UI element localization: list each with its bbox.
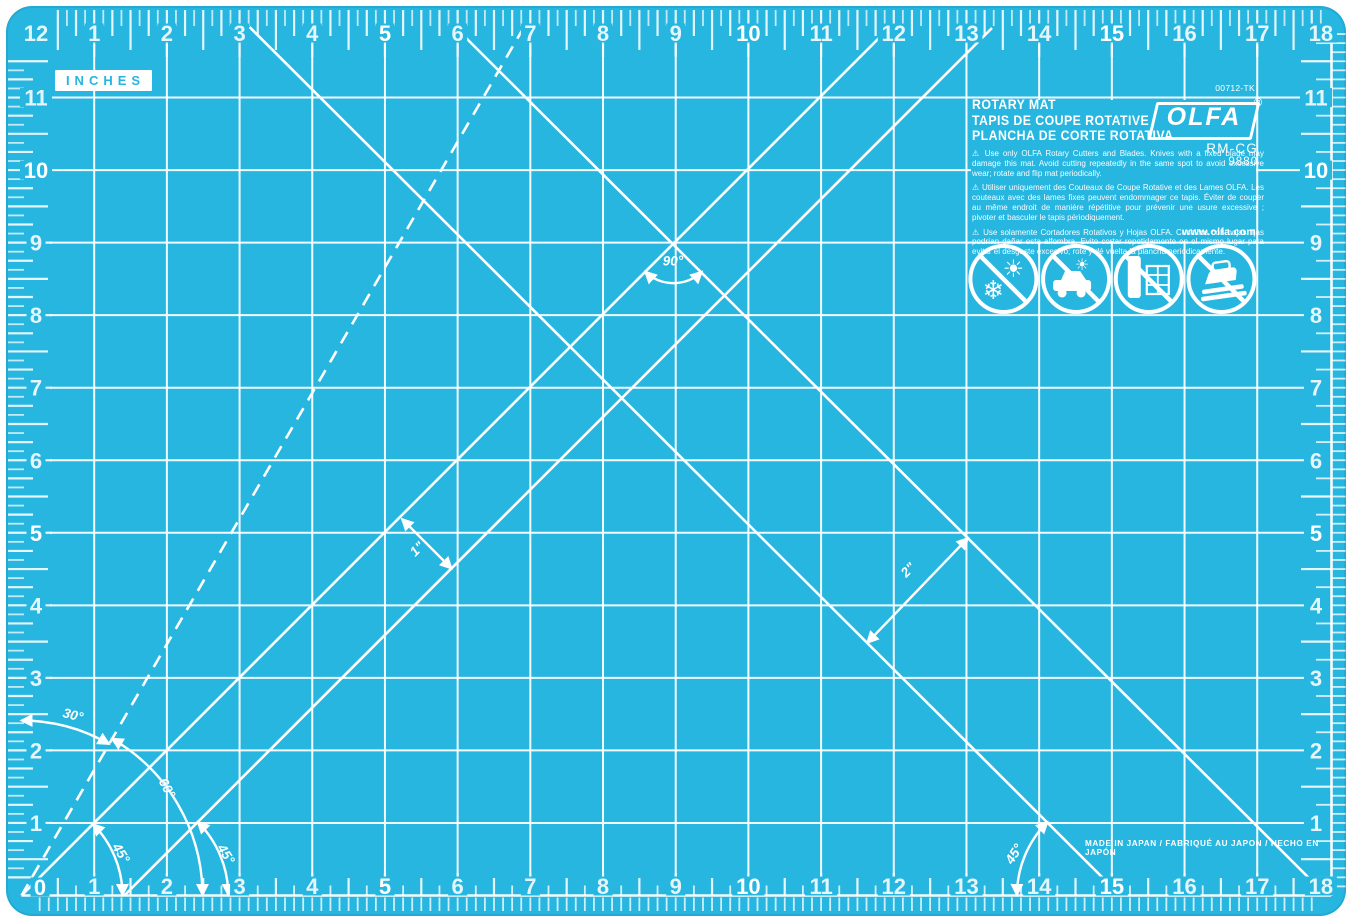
svg-text:1: 1 [1310,811,1322,836]
svg-text:2: 2 [1310,738,1322,763]
website-url: www.olfa.com [1182,226,1256,238]
made-in-label: MADE IN JAPAN / FABRIQUÉ AU JAPON / HECH… [1085,839,1352,857]
svg-text:15: 15 [1100,21,1124,46]
inches-label: INCHES [55,70,152,91]
svg-text:10: 10 [736,21,760,46]
svg-text:3: 3 [233,21,245,46]
svg-text:7: 7 [524,874,536,899]
svg-text:10: 10 [736,874,760,899]
svg-text:11: 11 [809,874,832,899]
svg-text:2: 2 [30,738,42,763]
model-code: RM-CG [1206,141,1258,156]
svg-text:6: 6 [1310,448,1322,473]
svg-text:8: 8 [597,21,609,46]
svg-text:7: 7 [1310,376,1322,401]
svg-text:9: 9 [30,231,42,256]
svg-text:6: 6 [30,448,42,473]
olfa-logo: OLFA [1155,102,1253,134]
svg-text:0: 0 [34,875,46,900]
registered-trademark-icon: ® [1254,97,1262,109]
title-es: PLANCHA DE CORTE ROTATIVA [972,128,1174,144]
svg-text:10: 10 [24,158,48,183]
svg-text:9: 9 [670,21,682,46]
warning-text-block: ⚠ Use only OLFA Rotary Cutters and Blade… [972,149,1264,257]
svg-text:17: 17 [1245,874,1269,899]
svg-text:3: 3 [1310,666,1322,691]
svg-text:17: 17 [1245,21,1269,46]
svg-text:4: 4 [30,593,43,618]
svg-text:4: 4 [306,21,319,46]
svg-text:1: 1 [88,21,100,46]
svg-text:9: 9 [670,874,682,899]
cutting-mat-photo: ☀❄☀ 123456789101112131415161718121110987… [0,0,1352,922]
part-number: 00712-TK [1215,83,1255,93]
model-number: 9880 [1228,156,1258,168]
svg-text:1: 1 [88,874,100,899]
svg-text:16: 16 [1172,21,1196,46]
svg-text:11: 11 [24,86,47,111]
svg-text:12: 12 [882,21,906,46]
svg-text:5: 5 [379,21,391,46]
svg-text:8: 8 [597,874,609,899]
svg-text:18: 18 [1309,874,1333,899]
svg-text:2: 2 [161,21,173,46]
svg-text:16: 16 [1172,874,1196,899]
svg-text:13: 13 [954,874,978,899]
svg-text:3: 3 [233,874,245,899]
warning-french: ⚠ Utiliser uniquement des Couteaux de Co… [972,183,1264,222]
svg-text:13: 13 [954,21,978,46]
svg-text:3: 3 [30,666,42,691]
svg-text:7: 7 [524,21,536,46]
svg-text:11: 11 [1304,86,1327,111]
svg-text:6: 6 [452,874,464,899]
svg-text:9: 9 [1310,231,1322,256]
svg-text:10: 10 [1304,158,1328,183]
svg-text:12: 12 [24,21,48,46]
svg-text:2: 2 [161,874,173,899]
svg-text:4: 4 [1310,593,1323,618]
svg-text:6: 6 [452,21,464,46]
svg-text:14: 14 [1027,21,1052,46]
svg-text:❄: ❄ [983,276,1005,306]
svg-text:5: 5 [30,521,42,546]
svg-text:1: 1 [30,811,42,836]
title-en: ROTARY MAT [972,97,1174,113]
svg-text:11: 11 [809,21,832,46]
svg-text:12: 12 [882,874,906,899]
angle-90-label: 90° [663,254,683,269]
svg-text:8: 8 [30,303,42,328]
title-fr: TAPIS DE COUPE ROTATIVE [972,113,1174,129]
svg-text:7: 7 [30,376,42,401]
svg-text:5: 5 [379,874,391,899]
svg-text:8: 8 [1310,303,1322,328]
svg-text:14: 14 [1027,874,1052,899]
svg-text:5: 5 [1310,521,1322,546]
svg-text:18: 18 [1309,21,1333,46]
svg-text:4: 4 [306,874,319,899]
svg-text:15: 15 [1100,874,1124,899]
